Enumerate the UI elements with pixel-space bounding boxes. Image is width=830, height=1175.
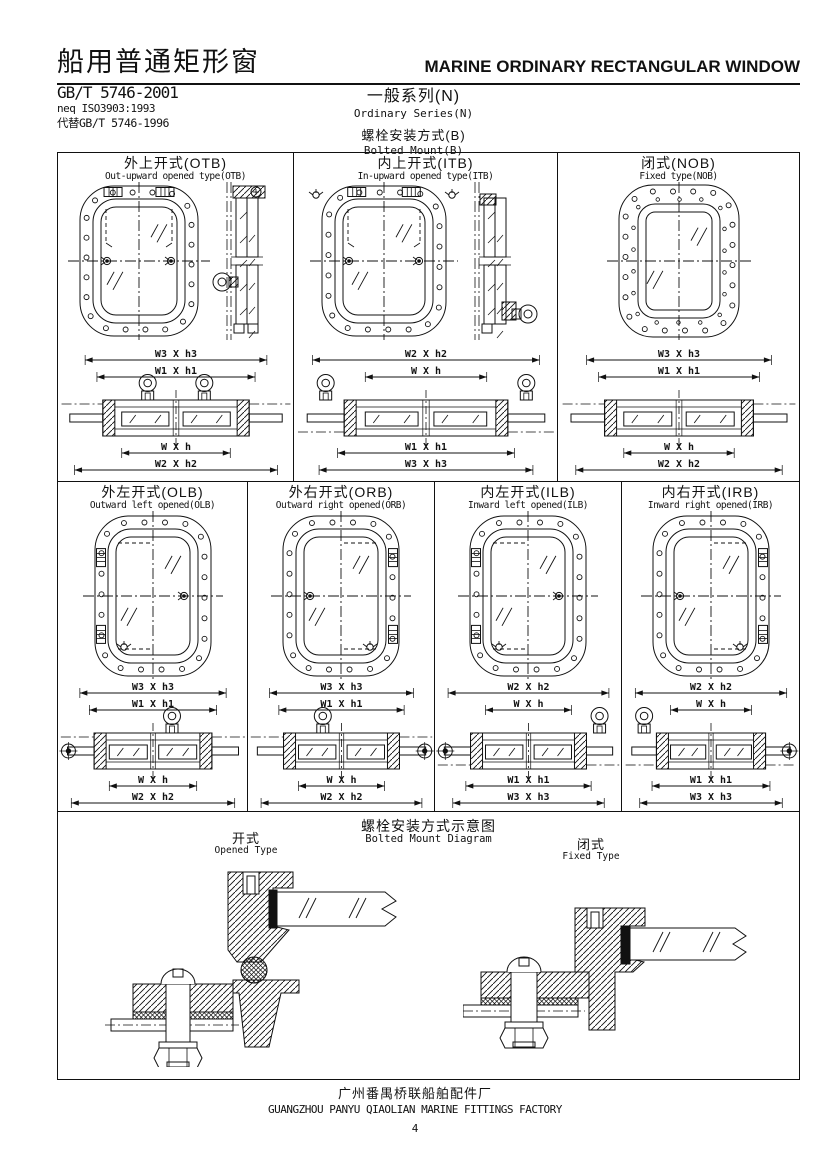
mount-diagram-title-en: Bolted Mount Diagram	[58, 834, 799, 846]
mount-fixed-drawing	[463, 900, 763, 1060]
dimension-label: W1 X h1	[657, 366, 699, 377]
front-view-drawing-nob	[559, 182, 799, 340]
dimension-label: W3 X h3	[657, 349, 699, 360]
dimension-label: W3 X h3	[404, 459, 446, 470]
series-name-zh: 一般系列(N)	[57, 82, 770, 106]
section-view-drawing-ilb: W2 X h2W X hW1 X h1W3 X h3	[435, 681, 622, 811]
fixed-type-label-zh: 闭式	[536, 838, 646, 852]
table-row-2: 外左开式(OLB) Outward left opened(OLB) W3 X …	[58, 481, 799, 811]
drawing-table: 外上开式(OTB) Out-upward opened type(OTB) W3…	[57, 152, 800, 1080]
cell-title: 闭式(NOB) Fixed type(NOB)	[639, 156, 717, 182]
window-type-title-en: Fixed type(NOB)	[639, 172, 717, 182]
bolted-mount-section: 螺栓安装方式示意图 Bolted Mount Diagram 开式 Opened…	[58, 811, 799, 1079]
window-type-title-zh: 外上开式(OTB)	[105, 156, 246, 171]
cell-title: 内上开式(ITB) In-upward opened type(ITB)	[358, 156, 494, 182]
dimension-label: W2 X h2	[657, 459, 699, 470]
dimension-label: W2 X h2	[689, 682, 731, 693]
page-title-en: MARINE ORDINARY RECTANGULAR WINDOW	[424, 57, 800, 79]
section-view-drawing-olb: W3 X h3W1 X h1W X hW2 X h2	[58, 681, 248, 811]
window-type-title-zh: 内左开式(ILB)	[468, 485, 588, 500]
page-title-zh: 船用普通矩形窗	[57, 40, 260, 79]
cell-ilb: 内左开式(ILB) Inward left opened(ILB) W2 X h…	[435, 482, 622, 811]
dimension-label: W2 X h2	[320, 792, 362, 803]
cell-title: 外右开式(ORB) Outward right opened(ORB)	[276, 485, 407, 511]
footer: 广州番禺桥联船舶配件厂 GUANGZHOU PANYU QIAOLIAN MAR…	[0, 1086, 830, 1117]
front-view-drawing-olb	[58, 511, 248, 681]
fixed-type-label-en: Fixed Type	[536, 852, 646, 862]
mount-diagram-title: 螺栓安装方式示意图 Bolted Mount Diagram	[58, 819, 799, 846]
window-type-title-en: Inward right opened(IRB)	[648, 501, 773, 511]
cell-title: 外上开式(OTB) Out-upward opened type(OTB)	[105, 156, 246, 182]
sub-header: GB/T 5746-2001 neq ISO3903:1993 代替GB/T 5…	[57, 82, 800, 150]
dimension-label: W3 X h3	[154, 349, 196, 360]
window-type-title-en: Outward left opened(OLB)	[90, 501, 215, 511]
opened-type-label: 开式 Opened Type	[191, 832, 301, 857]
cell-title: 外左开式(OLB) Outward left opened(OLB)	[90, 485, 215, 511]
front-view-drawing-orb	[248, 511, 435, 681]
mount-diagram-title-zh: 螺栓安装方式示意图	[58, 819, 799, 834]
mount-type-zh: 螺栓安装方式(B)	[57, 125, 770, 144]
title-bar: 船用普通矩形窗 MARINE ORDINARY RECTANGULAR WIND…	[57, 40, 800, 85]
cell-olb: 外左开式(OLB) Outward left opened(OLB) W3 X …	[58, 482, 248, 811]
dimension-label: W3 X h3	[689, 792, 731, 803]
cell-nob: 闭式(NOB) Fixed type(NOB) W3 X h3W1 X h1W …	[558, 153, 799, 481]
window-type-title-zh: 内上开式(ITB)	[358, 156, 494, 171]
cell-title: 内左开式(ILB) Inward left opened(ILB)	[468, 485, 588, 511]
section-view-drawing-orb: W3 X h3W1 X h1W X hW2 X h2	[248, 681, 435, 811]
cell-title: 内右开式(IRB) Inward right opened(IRB)	[648, 485, 773, 511]
front-view-drawing-ilb	[435, 511, 622, 681]
front-view-drawing-otb	[58, 182, 294, 340]
fixed-type-label: 闭式 Fixed Type	[536, 838, 646, 863]
front-view-drawing-itb	[294, 182, 558, 340]
cell-irb: 内右开式(IRB) Inward right opened(IRB) W2 X …	[622, 482, 799, 811]
series-block: 一般系列(N) Ordinary Series(N) 螺栓安装方式(B) Bol…	[57, 82, 770, 157]
dimension-label: W X h	[513, 699, 543, 710]
dimension-label: W3 X h3	[131, 682, 173, 693]
document-page: 船用普通矩形窗 MARINE ORDINARY RECTANGULAR WIND…	[0, 0, 830, 1175]
section-view-drawing-nob: W3 X h3W1 X h1W X hW2 X h2	[559, 340, 799, 478]
window-type-title-zh: 闭式(NOB)	[639, 156, 717, 171]
section-view-drawing-irb: W2 X h2W X hW1 X h1W3 X h3	[623, 681, 799, 811]
window-type-title-en: In-upward opened type(ITB)	[358, 172, 494, 182]
page-number: 4	[0, 1122, 830, 1135]
mount-opened-drawing	[103, 862, 403, 1067]
window-type-title-zh: 外右开式(ORB)	[276, 485, 407, 500]
dimension-label: W3 X h3	[320, 682, 362, 693]
cell-itb: 内上开式(ITB) In-upward opened type(ITB) W2 …	[294, 153, 558, 481]
section-view-drawing-otb: W3 X h3W1 X h1W X hW2 X h2	[58, 340, 294, 478]
window-type-title-en: Inward left opened(ILB)	[468, 501, 588, 511]
opened-type-label-en: Opened Type	[191, 846, 301, 856]
dimension-label: W2 X h2	[404, 349, 446, 360]
factory-name-zh: 广州番禺桥联船舶配件厂	[0, 1086, 830, 1103]
dimension-label: W X h	[695, 699, 725, 710]
opened-type-label-zh: 开式	[191, 832, 301, 846]
table-row-1: 外上开式(OTB) Out-upward opened type(OTB) W3…	[58, 153, 799, 481]
dimension-label: W1 X h1	[154, 366, 196, 377]
dimension-label: W2 X h2	[507, 682, 549, 693]
cell-otb: 外上开式(OTB) Out-upward opened type(OTB) W3…	[58, 153, 294, 481]
dimension-label: W X h	[410, 366, 440, 377]
window-type-title-zh: 内右开式(IRB)	[648, 485, 773, 500]
front-view-drawing-irb	[623, 511, 799, 681]
window-type-title-en: Out-upward opened type(OTB)	[105, 172, 246, 182]
dimension-label: W2 X h2	[131, 792, 173, 803]
dimension-label: W3 X h3	[507, 792, 549, 803]
window-type-title-en: Outward right opened(ORB)	[276, 501, 407, 511]
factory-name-en: GUANGZHOU PANYU QIAOLIAN MARINE FITTINGS…	[0, 1103, 830, 1117]
series-name-en: Ordinary Series(N)	[57, 107, 770, 120]
cell-orb: 外右开式(ORB) Outward right opened(ORB) W3 X…	[248, 482, 435, 811]
section-view-drawing-itb: W2 X h2W X hW1 X h1W3 X h3	[294, 340, 558, 478]
dimension-label: W2 X h2	[154, 459, 196, 470]
window-type-title-zh: 外左开式(OLB)	[90, 485, 215, 500]
